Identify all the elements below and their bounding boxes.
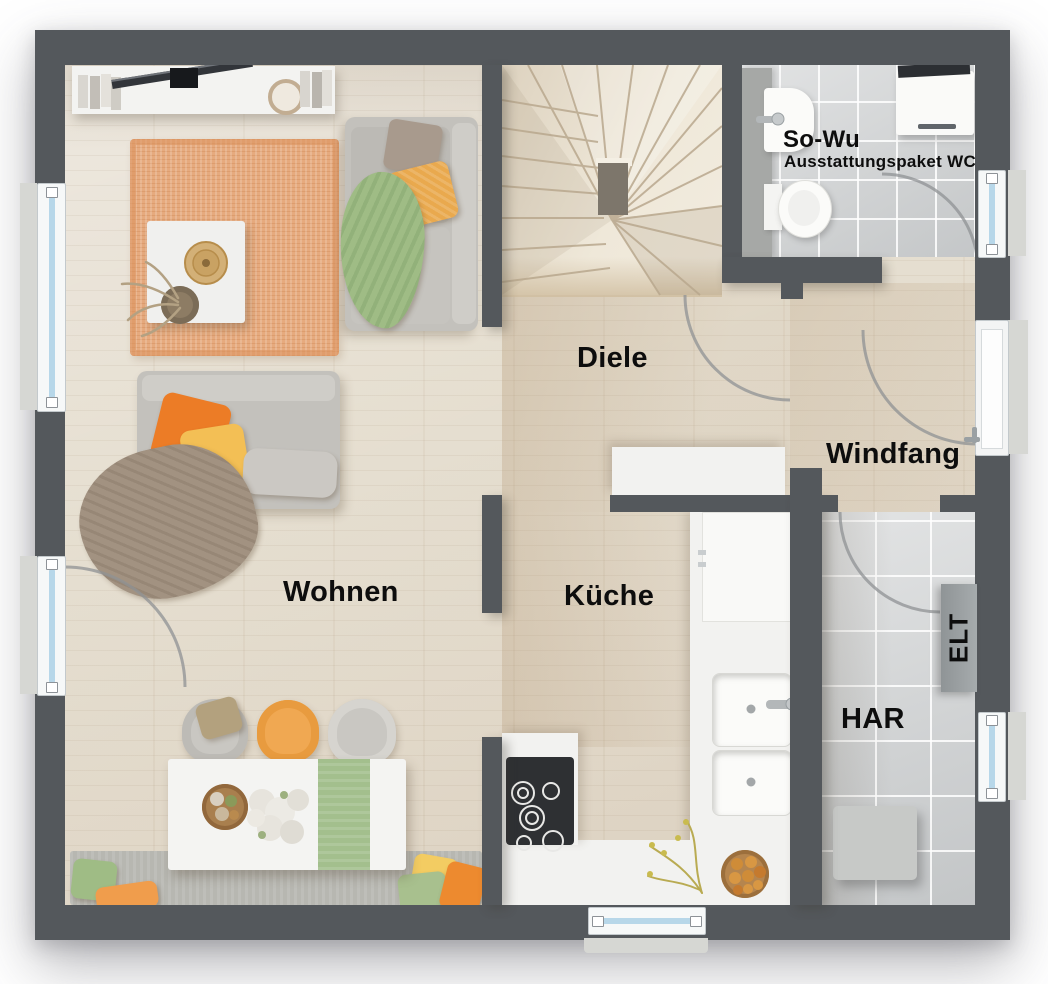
kitchen-sink-1: [712, 673, 792, 747]
window-glass: [989, 180, 995, 248]
elt-panel: ELT: [941, 584, 977, 692]
dining-chair-orange: [257, 700, 319, 762]
label-wc-title: So-Wu: [783, 128, 860, 152]
wall-kitchen-top: [610, 495, 790, 512]
staircase-fade: [502, 257, 722, 297]
window-sill-har: [1008, 712, 1026, 800]
window-cap: [986, 788, 998, 799]
decor-ring: [268, 79, 304, 115]
wall-stair-right: [722, 65, 742, 257]
books-right: [300, 71, 310, 107]
wall-left: [35, 30, 65, 940]
window-sill-bottom-out: [584, 938, 708, 953]
front-door: [975, 320, 1009, 456]
window-left-1: [37, 183, 66, 412]
window-sill-left-2: [20, 556, 37, 694]
wall-right: [975, 30, 1010, 940]
elt-label: ELT: [944, 613, 975, 663]
plant-vase: [161, 286, 199, 324]
window-cap: [986, 244, 998, 255]
wall-bottom: [35, 905, 1010, 940]
front-door-handle2: [972, 427, 977, 443]
har-appliance: [833, 806, 917, 880]
window-har: [978, 712, 1006, 802]
pillow-gray: [242, 448, 338, 499]
wall-mid-kitchen: [482, 495, 502, 613]
window-glass: [49, 568, 55, 684]
label-wc-subtitle: Ausstattungspaket WC: [784, 153, 976, 170]
table-runner: [318, 759, 370, 870]
front-door-panel: [981, 329, 1003, 449]
window-cap: [46, 559, 58, 570]
water-heater-vent: [918, 124, 956, 129]
window-cap: [592, 916, 604, 927]
front-door-step: [1008, 320, 1028, 454]
window-cap: [690, 916, 702, 927]
label-har: HAR: [841, 705, 905, 734]
wall-har-top-left: [822, 495, 838, 512]
window-cap: [46, 397, 58, 408]
terrace-door: [37, 556, 66, 696]
window-wc: [978, 170, 1006, 258]
books-left: [78, 75, 88, 108]
kitchen-fruit-bowl: [721, 850, 769, 898]
window-cap: [986, 715, 998, 726]
floor-plan: ELT Wohnen Küche Diele Windfang HAR So-W…: [0, 0, 1048, 984]
sofa-chaise-back: [452, 123, 476, 324]
window-cap: [986, 173, 998, 184]
dining-chair-right: [328, 699, 396, 765]
wall-chimney-block: [790, 468, 822, 495]
window-glass: [989, 723, 995, 791]
cooktop: [506, 757, 574, 845]
wall-har-left: [790, 495, 822, 905]
fruit-bowl-table: [202, 784, 248, 830]
label-diele: Diele: [577, 344, 648, 373]
hall-sideboard: [612, 447, 785, 495]
wc-toilet-seat: [788, 190, 820, 226]
wall-top: [35, 30, 1010, 65]
window-bottom: [588, 907, 706, 935]
fridge-handle: [698, 550, 706, 555]
tv-box: [170, 68, 198, 88]
window-cap: [46, 682, 58, 693]
kitchen-floor-shade: [502, 512, 692, 747]
kitchen-sink-2: [712, 750, 792, 816]
window-cap: [46, 187, 58, 198]
label-wohnen: Wohnen: [283, 578, 399, 607]
window-sill-wc: [1008, 170, 1026, 256]
window-glass: [600, 918, 694, 924]
label-windfang: Windfang: [826, 440, 960, 469]
wall-har-top-right: [940, 495, 975, 512]
kitchen-fridge: [702, 512, 792, 622]
window-glass: [49, 196, 55, 399]
label-kueche: Küche: [564, 582, 654, 611]
window-sill-left-1: [20, 183, 37, 410]
wall-hall-door-stub: [781, 273, 803, 299]
wall-mid-upper: [482, 65, 502, 327]
wall-mid-lower: [482, 737, 502, 905]
